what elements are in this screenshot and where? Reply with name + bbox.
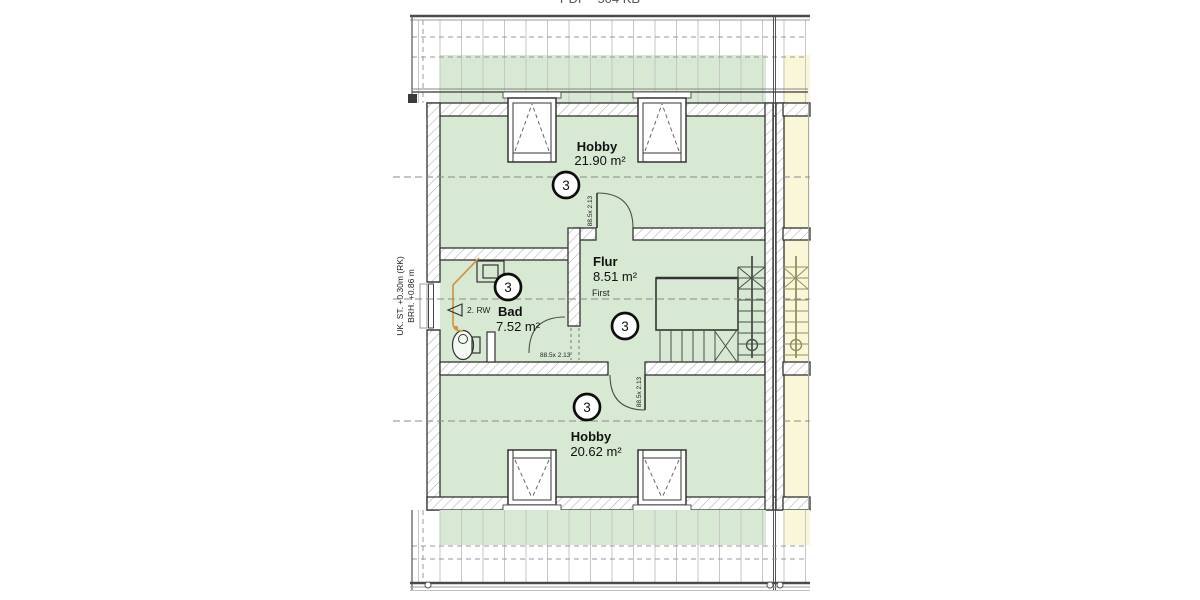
file-size-label: PDF - 504 KB <box>560 0 640 6</box>
svg-text:3: 3 <box>504 280 512 295</box>
party-wall-right-leaf <box>776 103 784 510</box>
left-window <box>420 282 440 330</box>
party-wall-left-leaf <box>765 103 773 510</box>
roof-overhang-top <box>410 16 810 103</box>
pipe-node <box>454 326 458 330</box>
partition-stub <box>487 332 495 362</box>
room-name-hobby-bottom: Hobby <box>571 429 612 444</box>
sill-height-note: UK. ST. +0.30m (RK) BRH. +0.86 m <box>395 256 416 336</box>
sill-note-line2: BRH. +0.86 m <box>406 269 416 323</box>
gutter-outlet <box>425 582 431 588</box>
roof-window <box>503 450 561 511</box>
room-name-bad: Bad <box>498 304 523 319</box>
room-name-hobby-top: Hobby <box>577 139 618 154</box>
door-size-label: 88.5x 2.13 <box>587 195 594 226</box>
gutter-outlet <box>767 582 773 588</box>
bad-top-wall <box>440 248 575 260</box>
escape-route-label: 2. RW <box>467 305 490 315</box>
bad-flur-wall <box>568 228 580 326</box>
ridge-label: First <box>592 288 610 298</box>
svg-text:3: 3 <box>583 400 591 415</box>
exterior-wall-top <box>427 103 785 116</box>
middle-wall-left <box>440 362 608 375</box>
svg-text:3: 3 <box>621 319 629 334</box>
exterior-wall-left-upper <box>427 103 440 282</box>
chimney-marker <box>408 94 417 103</box>
room-name-flur: Flur <box>593 254 618 269</box>
room-area-hobby-bottom: 20.62 m² <box>570 444 622 459</box>
exterior-wall-left-lower <box>427 330 440 510</box>
roof-window <box>633 92 691 162</box>
door-size-label: 88.5x 2.13 <box>636 376 643 407</box>
room-area-bad: 7.52 m² <box>496 319 541 334</box>
roof-window <box>633 450 691 511</box>
svg-text:3: 3 <box>562 178 570 193</box>
roof-window <box>503 92 561 162</box>
middle-wall-right <box>645 362 765 375</box>
sill-note-line1: UK. ST. +0.30m (RK) <box>395 256 405 336</box>
floor-plan-canvas: PDF - 504 KB <box>0 0 1200 600</box>
room-area-hobby-top: 21.90 m² <box>574 153 626 168</box>
rafter-grid-top <box>411 20 810 103</box>
exterior-wall-bottom <box>427 497 785 510</box>
roof-overhang-bottom <box>410 510 810 591</box>
door-size-label: 88.5x 2.13 <box>540 352 571 359</box>
gutter-outlet <box>777 582 783 588</box>
flur-top-wall-right <box>633 228 765 240</box>
room-area-flur: 8.51 m² <box>593 269 638 284</box>
